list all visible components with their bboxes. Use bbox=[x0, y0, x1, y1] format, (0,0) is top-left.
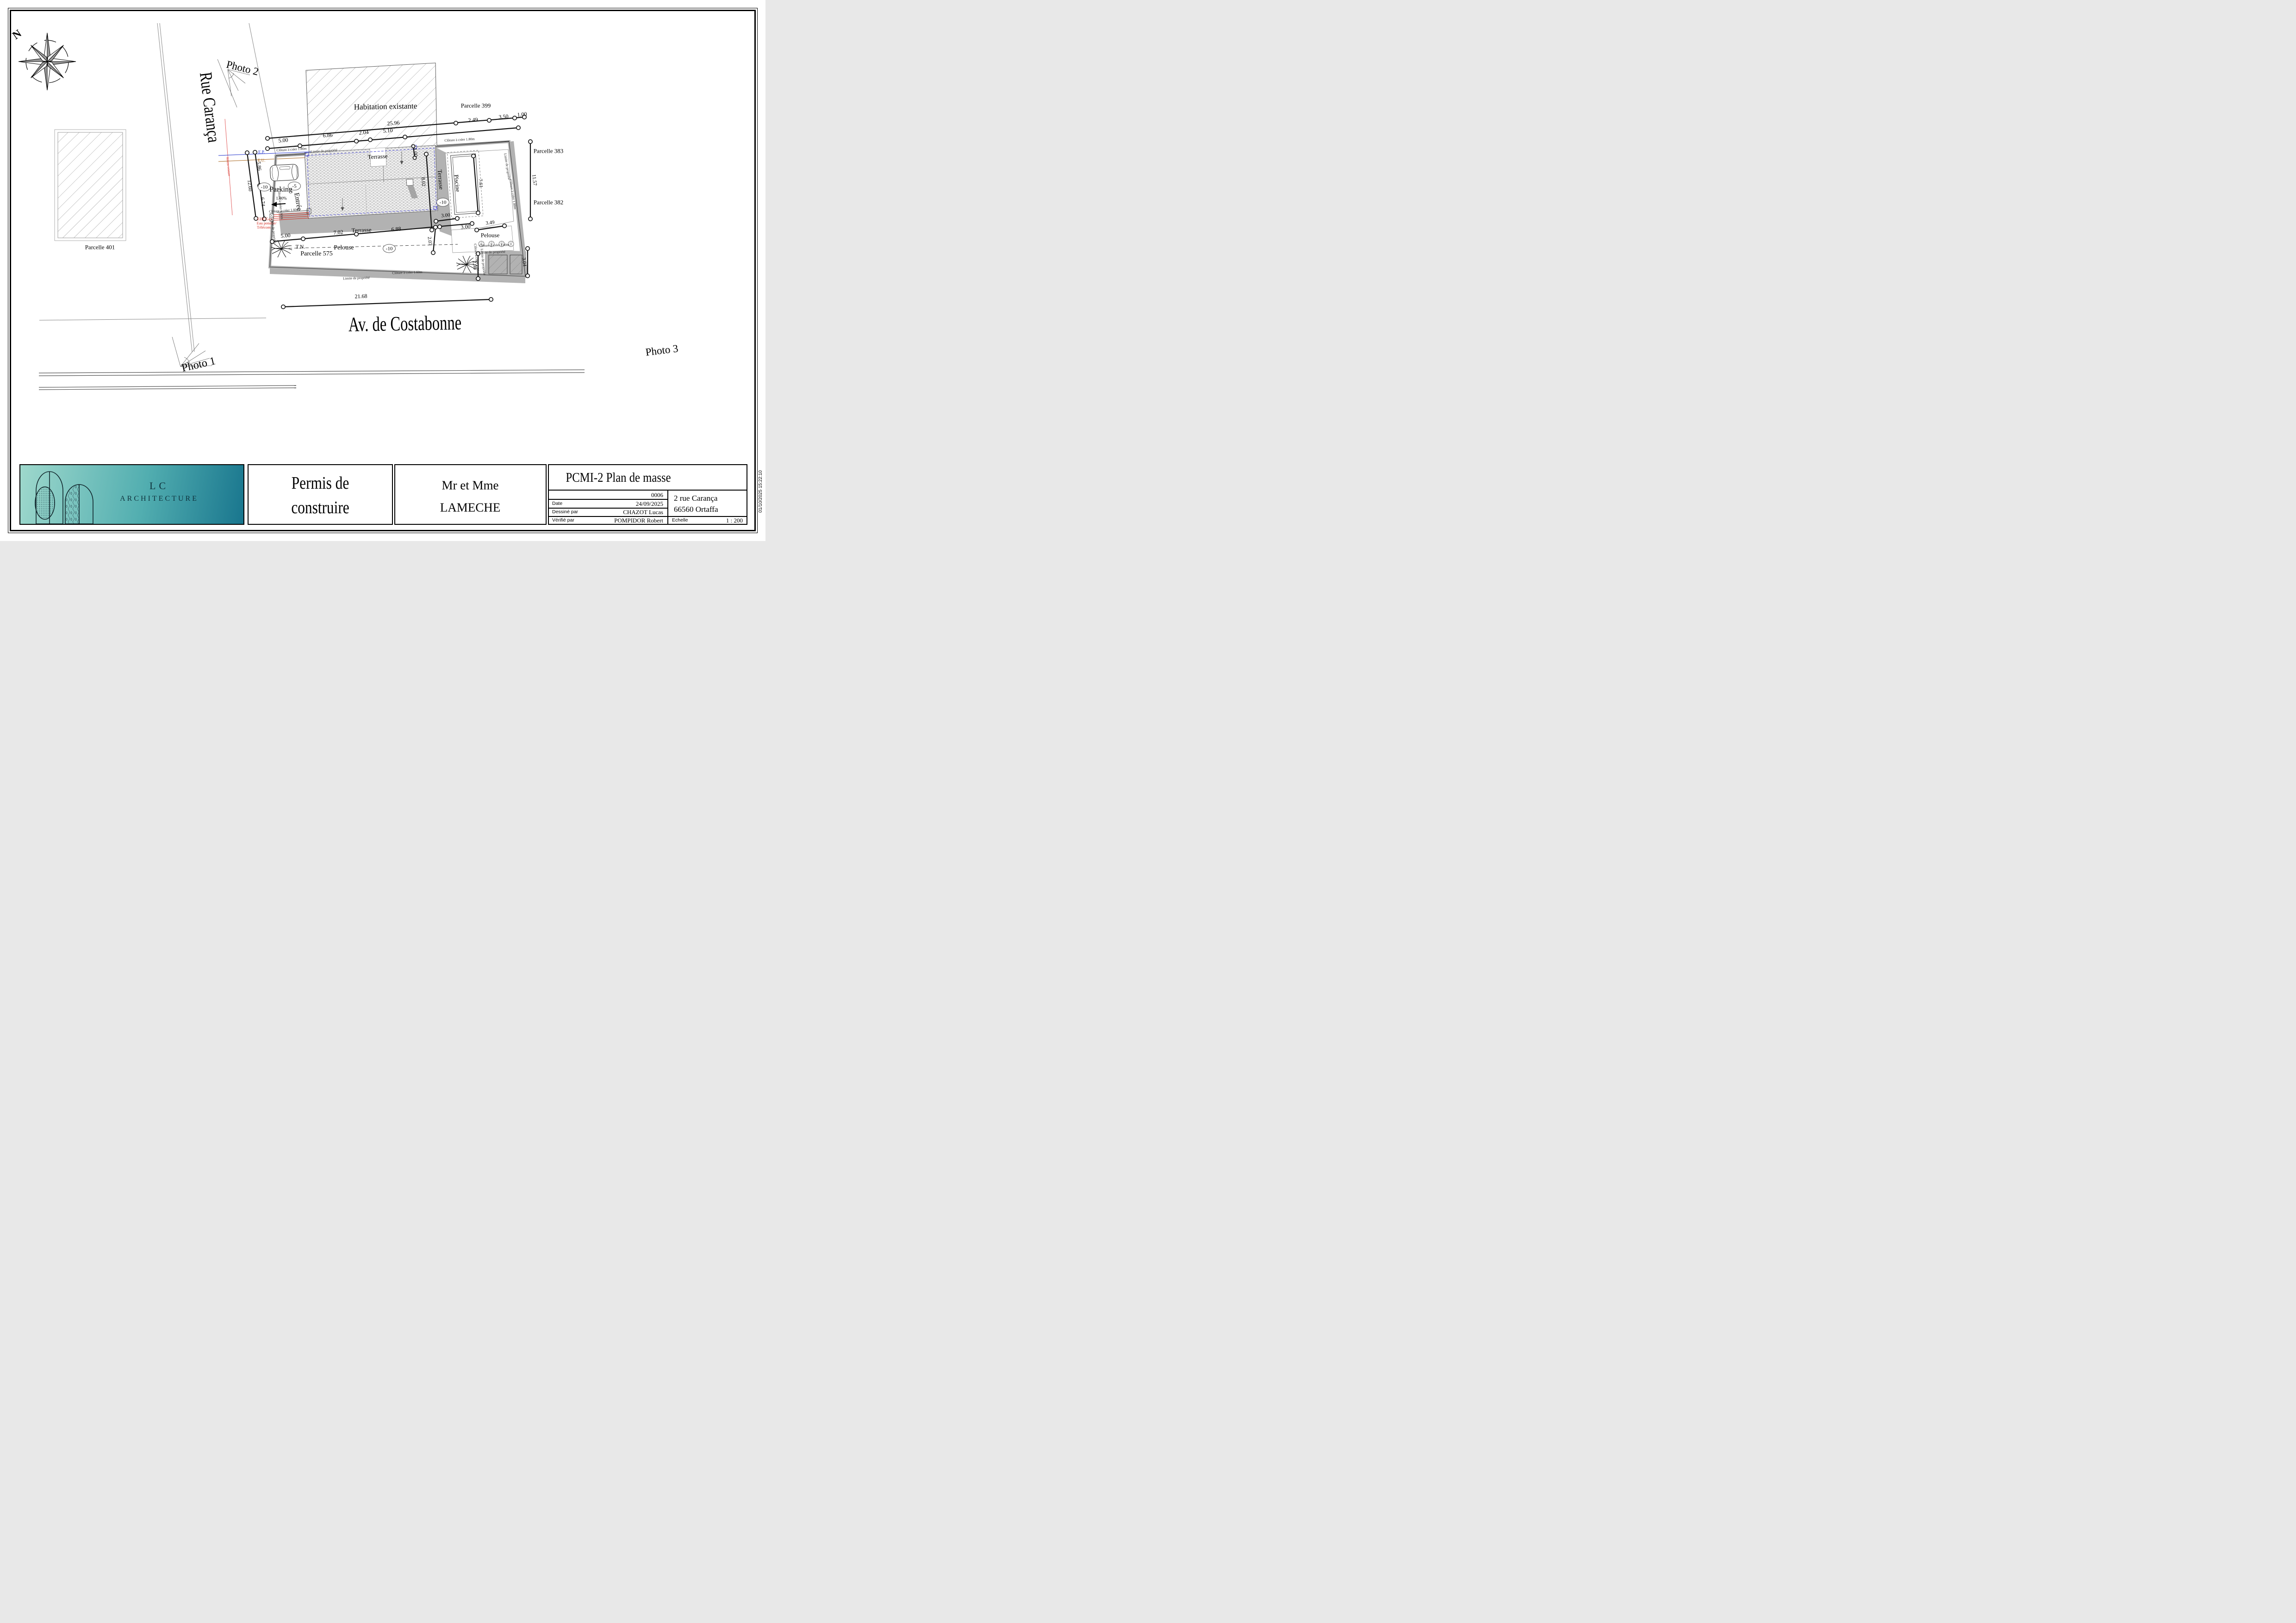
dim-249: 2.49 bbox=[468, 117, 478, 123]
drawn-label: Dessiné par bbox=[552, 509, 578, 515]
dim-702: 7.02 bbox=[333, 229, 343, 236]
dim-204: 2.04 bbox=[359, 129, 369, 136]
checked-label: Vérifié par bbox=[552, 517, 574, 523]
dim-686: 6.86 bbox=[323, 132, 333, 138]
checked-value: POMPIDOR Robert bbox=[614, 517, 663, 524]
pelouse-label-main: Pelouse bbox=[334, 245, 354, 251]
car-icon bbox=[270, 164, 299, 181]
annex-hatched-1 bbox=[489, 255, 507, 274]
scale-value: 1 : 200 bbox=[726, 517, 743, 524]
client-line1: Mr et Mme bbox=[442, 479, 499, 492]
sheet-number: 0006 bbox=[651, 491, 663, 499]
dim-802: 8.02 bbox=[420, 177, 426, 187]
date-label: Date bbox=[552, 501, 562, 506]
ep-label: E.P. bbox=[258, 150, 265, 155]
terrace-label-top: Terrasse bbox=[367, 153, 388, 160]
dim-510: 5.10 bbox=[383, 127, 393, 134]
doc-title-line2: construire bbox=[291, 499, 349, 517]
terrace-label-right: Terrasse bbox=[437, 169, 445, 190]
parcel-575-label: Parcelle 575 bbox=[300, 251, 333, 257]
dim-100-top: 1.00 bbox=[517, 111, 527, 118]
titleblock-doc-panel: Permis de construire bbox=[248, 464, 393, 525]
dim-300-mid: 3.00 bbox=[441, 213, 450, 219]
chimney bbox=[406, 179, 413, 186]
dim-304: 3.04 bbox=[521, 257, 527, 267]
print-timestamp: 01/10/2025 15:22:10 bbox=[759, 470, 763, 513]
dim-298: 2.98 bbox=[472, 261, 478, 270]
piscine-label: Piscine bbox=[454, 174, 461, 193]
parcel-401-label: Parcelle 401 bbox=[85, 244, 115, 250]
road-lines bbox=[39, 370, 585, 390]
level-badge-minus10-terrace: -10 bbox=[436, 198, 449, 207]
tn-label: T.N. bbox=[295, 244, 305, 249]
drawn-value: CHAZOT Lucas bbox=[623, 509, 663, 516]
dim-2596: 25.96 bbox=[387, 120, 400, 126]
dim-761: 7.61 bbox=[478, 179, 484, 188]
scale-label: Echelle bbox=[672, 517, 688, 523]
dim-100-right: 1.00 bbox=[412, 148, 418, 157]
client-line2: LAMECHE bbox=[440, 502, 501, 514]
parcel-382-label: Parcelle 382 bbox=[534, 199, 564, 205]
titleblock-client-panel: Mr et Mme LAMECHE bbox=[394, 464, 547, 525]
dim-300-bottom: 3.00 bbox=[460, 224, 471, 230]
dim-349: 3.49 bbox=[485, 220, 495, 226]
dim-1157: 11.57 bbox=[531, 174, 537, 186]
fence-180-label-bushes: Clôture à créer 1.80m bbox=[479, 243, 510, 248]
dim-207: 2.07 bbox=[427, 236, 433, 246]
logo-architecture: ARCHITECTURE bbox=[120, 495, 199, 503]
terrace-label-bottom: Terrasse bbox=[351, 227, 372, 233]
titleblock-info-panel: PCMI-2 Plan de masse 0006 Date 24/09/202… bbox=[548, 464, 747, 525]
dim-1260: 12.60 bbox=[246, 180, 253, 192]
fence-160-label-2: Clôture à créer 1.60m bbox=[392, 270, 423, 275]
site-plan-sheet: N Rue Carança Av. de Costabonne Photo 2 … bbox=[0, 0, 765, 541]
parcel-399-label: Parcelle 399 bbox=[461, 103, 491, 109]
dim-674: 6.74 bbox=[260, 197, 266, 206]
level-badge-minus10-lawn: -10 bbox=[383, 244, 396, 253]
level-badge-minus10-parking: -10 bbox=[258, 183, 271, 192]
limite-label-bottom: Limite de propriété bbox=[343, 276, 370, 280]
parcel-401-hatch bbox=[58, 132, 123, 238]
logo-lc: LC bbox=[149, 480, 169, 492]
plan-drawing bbox=[0, 0, 765, 541]
date-value: 24/09/2025 bbox=[636, 500, 663, 508]
titleblock-logo-panel: LC ARCHITECTURE bbox=[19, 464, 244, 525]
dim-2168: 21.68 bbox=[355, 293, 367, 299]
address-line1: 2 rue Carança bbox=[674, 494, 717, 503]
gate-marker bbox=[307, 209, 311, 214]
dim-688: 6.88 bbox=[391, 226, 401, 232]
compass-rose-icon bbox=[19, 33, 76, 90]
doc-title-line1: Permis de bbox=[292, 475, 349, 492]
dim-586: 5.86 bbox=[256, 162, 262, 171]
edf-label-3: Télécom bbox=[257, 225, 271, 230]
logo-arches-icon bbox=[20, 465, 122, 524]
parcel-383-label: Parcelle 383 bbox=[534, 148, 564, 154]
dim-500-bottom: 5.00 bbox=[280, 232, 291, 239]
sheet-title: PCMI-2 Plan de masse bbox=[566, 471, 671, 485]
dim-350: 3.50 bbox=[498, 113, 509, 120]
pelouse-label-east: Pelouse bbox=[481, 232, 499, 238]
annex-hatched-2 bbox=[510, 255, 522, 274]
street-label-av-costabonne: Av. de Costabonne bbox=[348, 313, 462, 336]
address-line2: 66560 Ortaffa bbox=[674, 505, 718, 514]
existing-house-label: Habitation existante bbox=[354, 102, 417, 111]
dim-500-top: 5.00 bbox=[278, 137, 288, 143]
